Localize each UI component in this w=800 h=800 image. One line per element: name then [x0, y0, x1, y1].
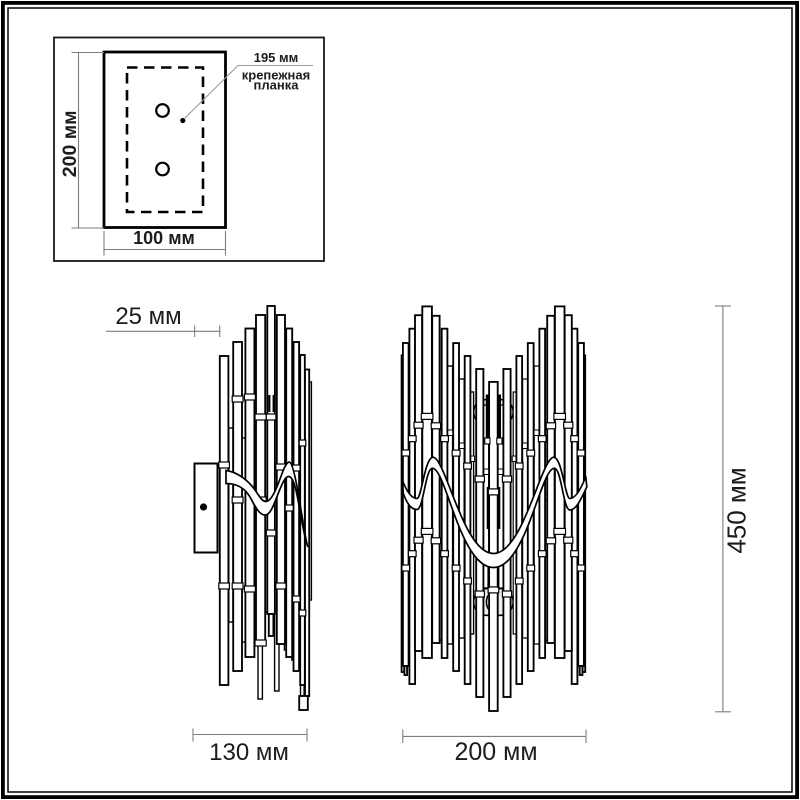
svg-text:100 мм: 100 мм [133, 228, 195, 248]
svg-text:25 мм: 25 мм [115, 303, 181, 330]
svg-text:195 мм: 195 мм [254, 50, 299, 65]
svg-text:планка: планка [254, 78, 300, 93]
svg-text:200 мм: 200 мм [59, 110, 81, 177]
svg-text:130 мм: 130 мм [209, 739, 289, 766]
svg-text:450 мм: 450 мм [722, 467, 752, 553]
svg-text:200 мм: 200 мм [454, 738, 537, 766]
